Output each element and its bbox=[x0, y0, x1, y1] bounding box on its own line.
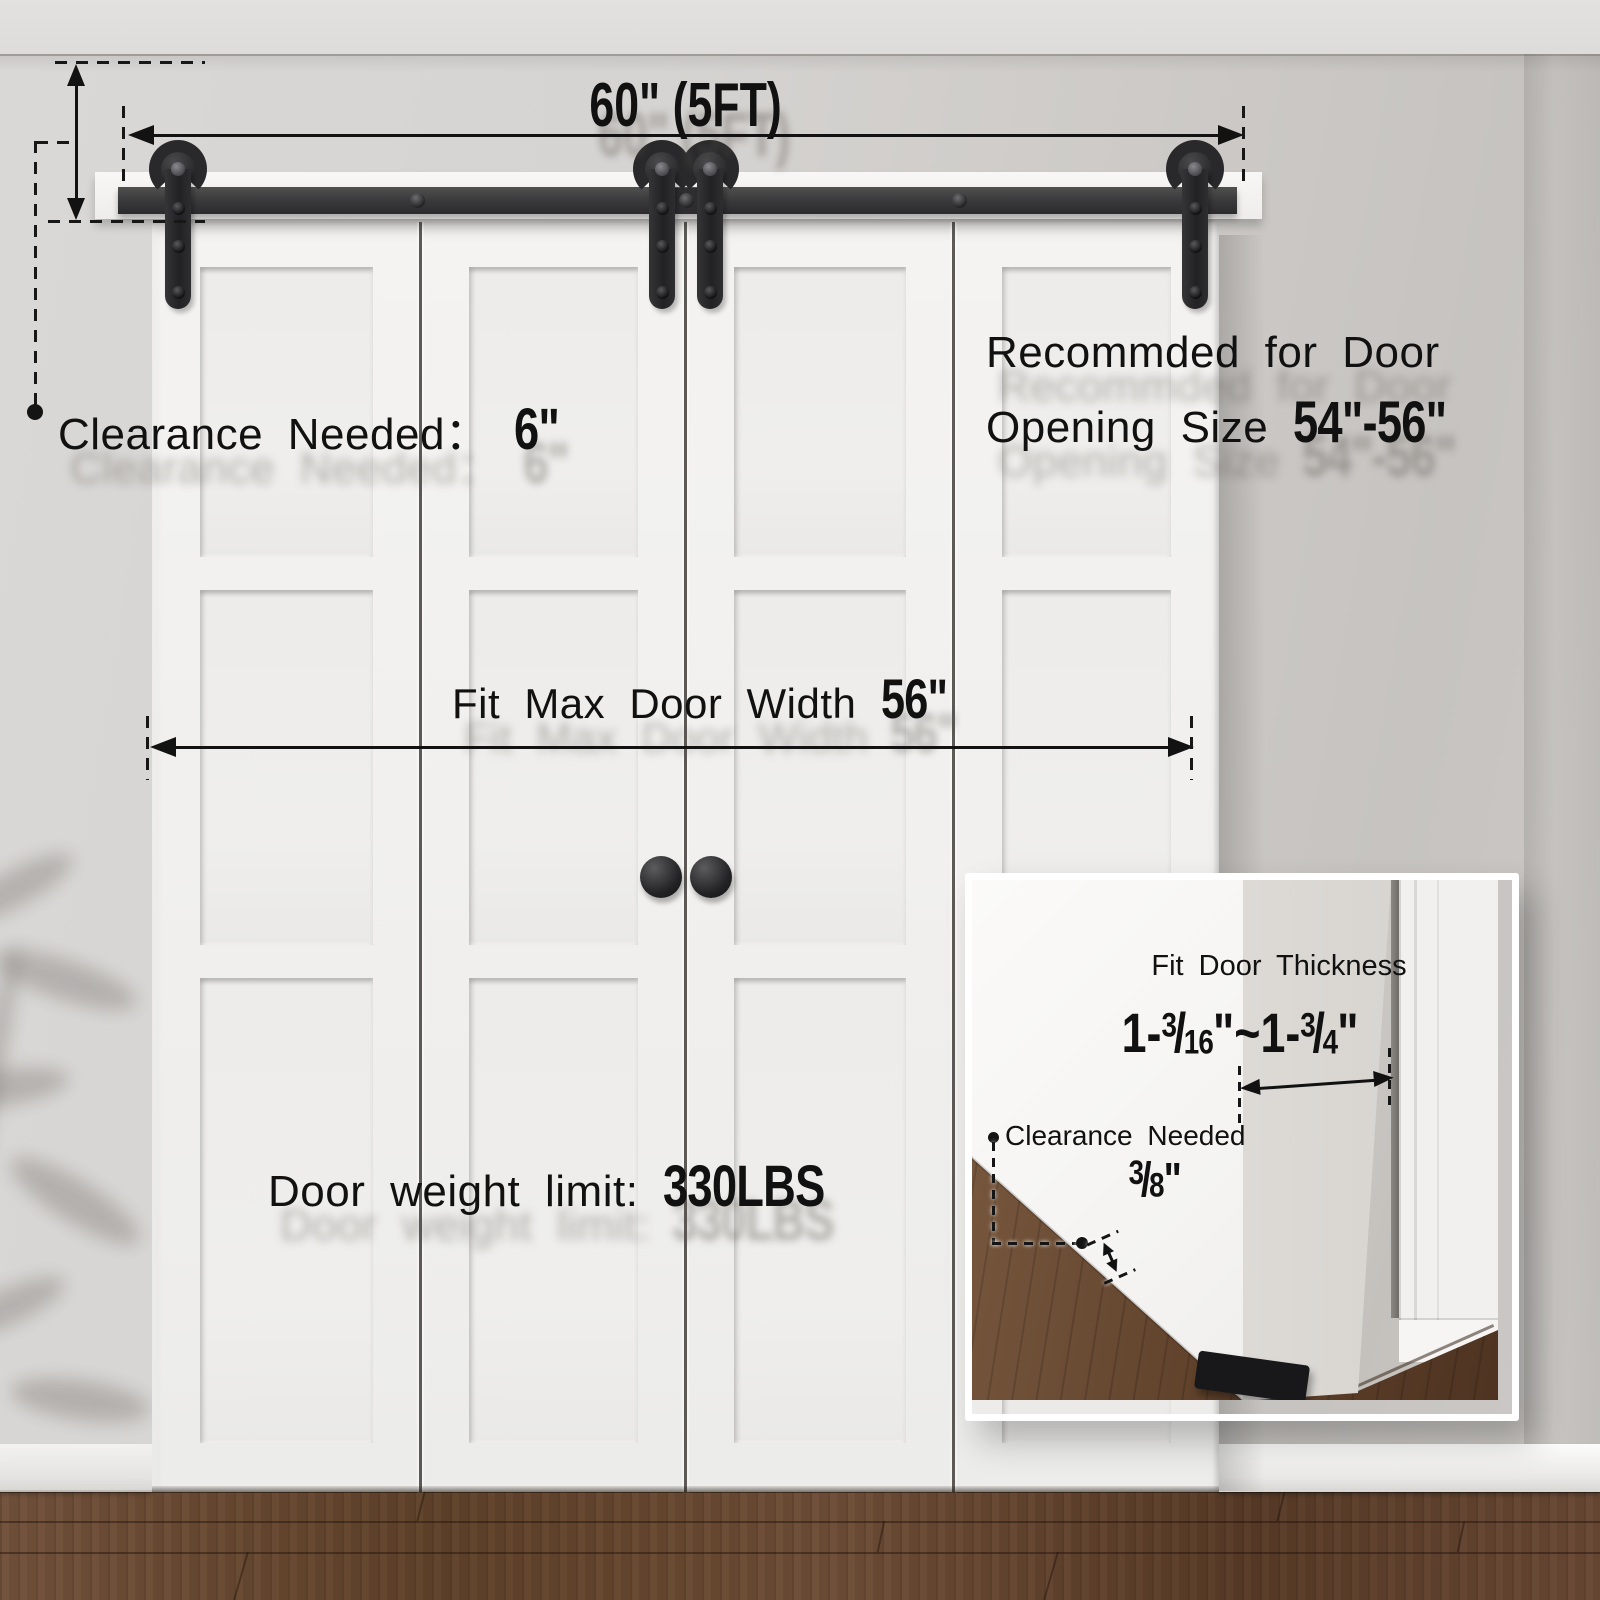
door-seam bbox=[952, 222, 955, 1492]
max-width-arrow-line bbox=[170, 746, 1172, 749]
strap-bolt bbox=[1189, 240, 1202, 253]
clearance-leader-line bbox=[992, 1242, 1082, 1245]
wood-floor bbox=[0, 1492, 1600, 1600]
arrowhead-down-icon bbox=[1106, 1258, 1122, 1274]
thickness-min-denominator: 16 bbox=[1184, 1023, 1213, 1061]
rail-bolt bbox=[410, 193, 425, 208]
baseboard-left bbox=[0, 1444, 152, 1492]
dimension-tick bbox=[1242, 106, 1245, 190]
thickness-max-unit: " bbox=[1337, 1001, 1358, 1064]
door-hanger bbox=[1155, 140, 1235, 318]
baseboard-right bbox=[1219, 1444, 1600, 1492]
wheel-hub-bolt bbox=[703, 162, 717, 176]
dimension-tick bbox=[1190, 716, 1193, 780]
door-hanger bbox=[670, 140, 750, 318]
door-thickness-label: Fit Door Thickness bbox=[1129, 950, 1429, 983]
recommended-line2: Opening Size 54"-56" bbox=[986, 394, 1490, 453]
clearance-dim-bottom-line bbox=[48, 220, 205, 223]
door-jamb-trim bbox=[1399, 880, 1498, 1332]
strap-bolt bbox=[704, 286, 717, 299]
door-center-seam bbox=[684, 222, 687, 1492]
max-width-value: 56" bbox=[881, 672, 947, 727]
door-knob bbox=[640, 856, 682, 898]
door-jamb-gap bbox=[1391, 880, 1399, 1318]
recommended-line1: Recommded for Door bbox=[986, 328, 1490, 378]
weight-value: 330LBS bbox=[663, 1158, 825, 1216]
weight-label: Door weight limit: bbox=[268, 1167, 638, 1216]
arrowhead-right-icon bbox=[1218, 125, 1244, 145]
inset-photo: Fit Door Thickness 1-3/16"~1-3/4" Cleara… bbox=[972, 880, 1498, 1400]
floor-clearance-value: 3/8" bbox=[1122, 1156, 1189, 1205]
door-knob bbox=[690, 856, 732, 898]
thickness-min-whole: 1- bbox=[1122, 1001, 1162, 1064]
dimension-tick bbox=[1238, 1066, 1241, 1128]
dimension-tick bbox=[122, 106, 125, 190]
floor-plank-seam bbox=[0, 1552, 1600, 1554]
leader-bullet bbox=[27, 404, 43, 420]
clearance-value: 6" bbox=[514, 401, 559, 459]
strap-bolt bbox=[656, 202, 669, 215]
ceiling bbox=[0, 0, 1600, 54]
arrowhead-left-icon bbox=[128, 125, 154, 145]
arrowhead-up-icon bbox=[67, 64, 85, 86]
door-panel bbox=[200, 590, 373, 945]
strap-bolt bbox=[704, 240, 717, 253]
product-dimension-diagram: 60" (5FT) Clearance Needed： 6" Recommded… bbox=[0, 0, 1600, 1600]
max-width-label: Fit Max Door Width bbox=[452, 680, 856, 727]
wheel-hub-bolt bbox=[655, 162, 669, 176]
track-length-arrow-line bbox=[148, 134, 1224, 137]
clearance-leader-line bbox=[34, 141, 37, 407]
clearance-unit: " bbox=[1164, 1154, 1182, 1207]
arrowhead-up-icon bbox=[1098, 1240, 1114, 1256]
wheel-hub-bolt bbox=[1188, 162, 1202, 176]
arrowhead-left-icon bbox=[150, 737, 176, 757]
strap-bolt bbox=[1189, 286, 1202, 299]
track-length-dimension-text: 60" (5FT) bbox=[386, 70, 986, 141]
door-panel bbox=[734, 267, 906, 557]
dimension-tick bbox=[1388, 1048, 1391, 1110]
strap-bolt bbox=[656, 240, 669, 253]
door-bottom-shadow bbox=[152, 1486, 1219, 1492]
door-weight-text: Door weight limit: 330LBS bbox=[268, 1158, 870, 1217]
thickness-max-whole: 1- bbox=[1260, 1001, 1300, 1064]
door-panel bbox=[734, 590, 906, 945]
door-hanger bbox=[138, 140, 218, 318]
strap-bolt bbox=[704, 202, 717, 215]
arrowhead-right-icon bbox=[1373, 1070, 1394, 1087]
max-door-width-text: Fit Max Door Width 56" bbox=[452, 672, 966, 728]
recommended-opening-text: Recommded for Door Opening Size 54"-56" bbox=[986, 328, 1490, 453]
rail-bolt bbox=[952, 193, 967, 208]
clearance-leader-line bbox=[36, 141, 78, 144]
arrowhead-left-icon bbox=[1239, 1079, 1260, 1096]
strap-bolt bbox=[1189, 202, 1202, 215]
clearance-label: Clearance Needed： bbox=[58, 410, 489, 459]
door-panel bbox=[469, 590, 638, 945]
strap-bolt bbox=[172, 240, 185, 253]
strap-bolt bbox=[172, 286, 185, 299]
arrowhead-down-icon bbox=[67, 198, 85, 220]
clearance-denominator: 8 bbox=[1149, 1166, 1164, 1204]
strap-bolt bbox=[656, 286, 669, 299]
clearance-leader-line bbox=[992, 1142, 995, 1244]
track-length-value: 60" (5FT) bbox=[590, 70, 782, 141]
recommended-value: 54"-56" bbox=[1293, 394, 1446, 452]
recommended-line2-label: Opening Size bbox=[986, 403, 1268, 452]
wheel-hub-bolt bbox=[171, 162, 185, 176]
thickness-min-unit: " bbox=[1213, 1001, 1234, 1064]
wall-corner-shading bbox=[1524, 54, 1600, 1446]
door-thickness-value: 1-3/16"~1-3/4" bbox=[1050, 1000, 1430, 1065]
floor-plank-seam bbox=[0, 1521, 1600, 1523]
dimension-tick bbox=[146, 716, 149, 780]
clearance-needed-text: Clearance Needed： 6" bbox=[58, 398, 572, 462]
strap-bolt bbox=[172, 202, 185, 215]
thickness-max-denominator: 4 bbox=[1323, 1023, 1338, 1061]
floor-clearance-label: Clearance Needed bbox=[1005, 1120, 1246, 1152]
thickness-separator: ~ bbox=[1234, 1001, 1260, 1064]
inset-panel: Fit Door Thickness 1-3/16"~1-3/4" Cleara… bbox=[965, 873, 1519, 1421]
